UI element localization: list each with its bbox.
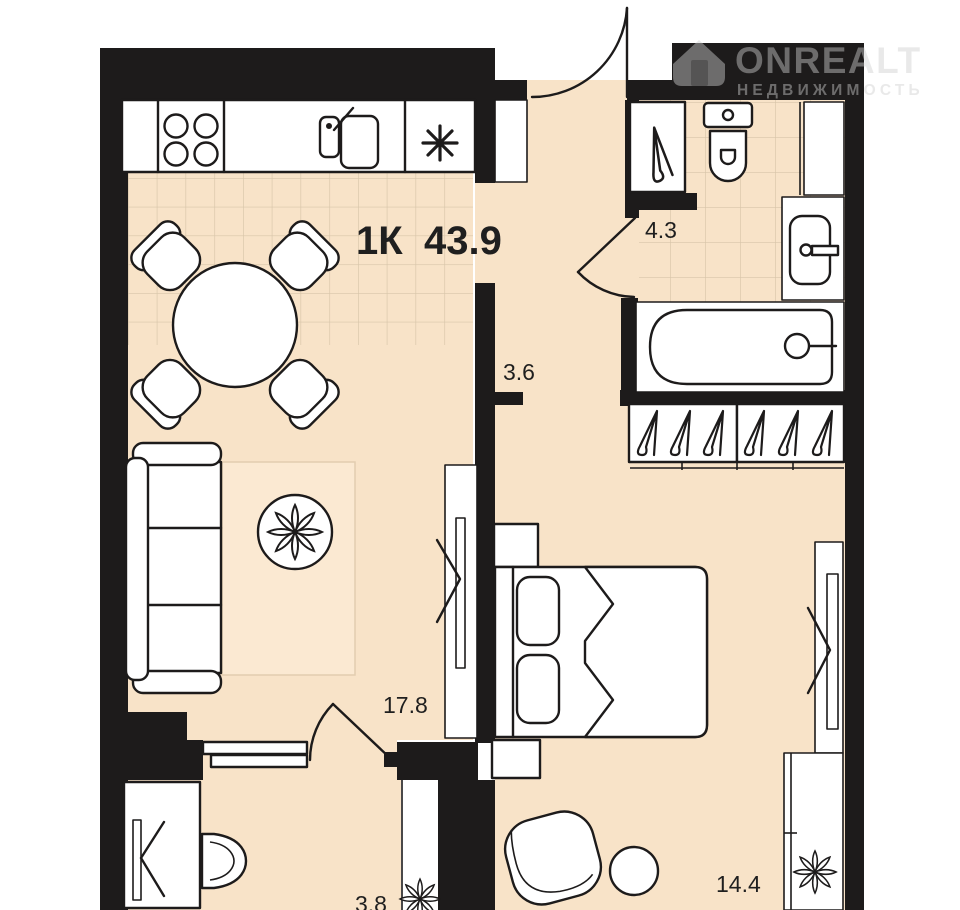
wall xyxy=(475,100,495,183)
wall xyxy=(438,780,495,910)
dining-table xyxy=(173,263,297,387)
room-area-label-hallway: 3.6 xyxy=(503,359,535,385)
brand-tagline: НЕДВИЖИМОСТЬ xyxy=(737,82,924,99)
wall xyxy=(475,283,495,743)
hallway-cabinet xyxy=(495,100,527,182)
wall xyxy=(487,392,523,405)
room-area-label-utility: 3.8 xyxy=(355,891,387,910)
wall xyxy=(495,80,527,100)
wall xyxy=(100,48,495,100)
wall xyxy=(625,193,697,210)
plan-title-area: 43.9 xyxy=(424,219,502,263)
floor-plan: 1К 43.9 3.6 4.3 17.8 14.4 3.8 ONREALT НЕ… xyxy=(0,0,960,910)
bathroom-closet xyxy=(630,102,685,192)
side-table xyxy=(610,847,658,895)
coffee-table xyxy=(258,495,332,569)
duvet xyxy=(585,567,707,737)
sofa-backrest xyxy=(126,458,148,680)
sofa xyxy=(126,443,221,693)
wall xyxy=(100,48,128,910)
washbasin xyxy=(782,197,844,300)
room-area-label-bathroom: 4.3 xyxy=(645,217,677,243)
wall xyxy=(128,712,187,740)
plant-flower-icon xyxy=(794,851,836,893)
wall xyxy=(845,43,864,910)
sliding-panel xyxy=(203,742,307,754)
hallway-wardrobe xyxy=(629,404,844,470)
room-area-label-living: 17.8 xyxy=(383,692,428,718)
pillow xyxy=(517,655,559,723)
bathroom-tall-cabinet xyxy=(800,102,844,195)
door-hinge-block xyxy=(384,752,397,767)
hall-coat-rack xyxy=(124,782,200,908)
pillow xyxy=(517,577,559,645)
bed xyxy=(495,567,707,737)
wall xyxy=(397,742,478,780)
plant-flower-icon xyxy=(268,505,322,559)
room-area-label-bedroom: 14.4 xyxy=(716,871,761,897)
toilet xyxy=(704,103,752,181)
wall xyxy=(100,740,203,780)
plan-title-type: 1К xyxy=(356,219,403,263)
sliding-panel xyxy=(211,755,307,767)
snowflake-fridge-icon xyxy=(423,126,457,160)
bathtub xyxy=(636,302,844,392)
floor-plan-page: 1К 43.9 3.6 4.3 17.8 14.4 3.8 ONREALT НЕ… xyxy=(0,0,960,910)
utility-passage xyxy=(400,780,440,910)
brand-name: ONREALT xyxy=(735,40,922,81)
balcony-window xyxy=(784,753,843,910)
nightstand xyxy=(494,524,538,567)
nightstand xyxy=(492,740,540,778)
